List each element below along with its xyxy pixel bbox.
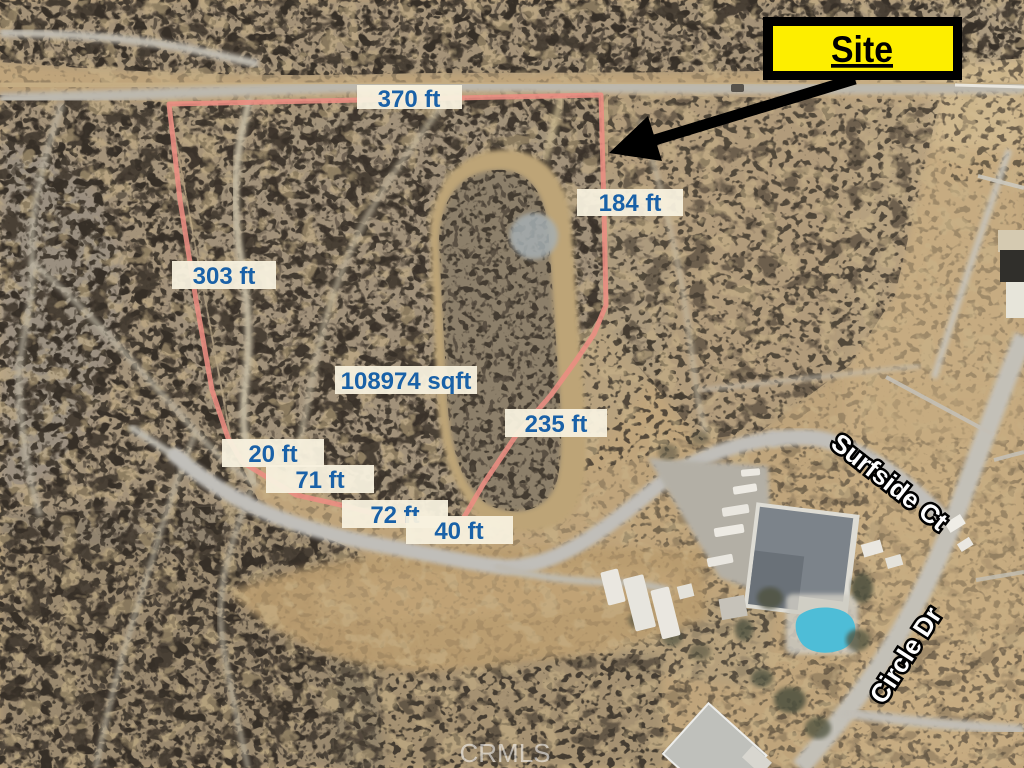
svg-text:CRMLS: CRMLS (459, 738, 550, 768)
svg-text:Site: Site (831, 29, 893, 70)
svg-text:303 ft: 303 ft (193, 263, 256, 290)
svg-text:71 ft: 71 ft (295, 467, 344, 494)
svg-text:370 ft: 370 ft (378, 86, 441, 113)
svg-text:235 ft: 235 ft (525, 411, 588, 438)
svg-text:40 ft: 40 ft (434, 518, 483, 545)
svg-text:184 ft: 184 ft (599, 190, 662, 217)
svg-text:108974 sqft: 108974 sqft (341, 368, 472, 395)
svg-text:20 ft: 20 ft (248, 441, 297, 468)
